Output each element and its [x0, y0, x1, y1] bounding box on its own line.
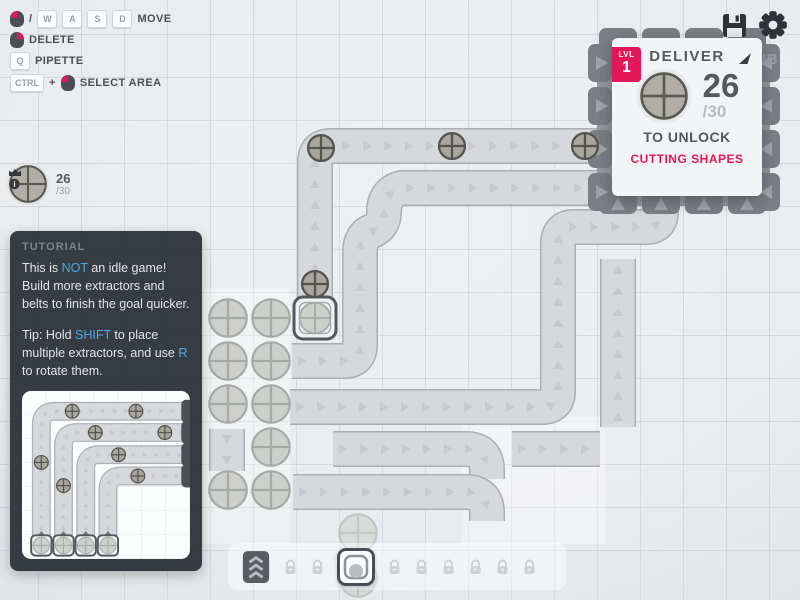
- tutorial-panel: TUTORIAL This is NOT an idle game! Build…: [10, 231, 202, 571]
- plus-sign: +: [49, 77, 56, 89]
- key-s: S: [87, 10, 107, 28]
- pin-goal-button[interactable]: [739, 52, 752, 65]
- toolbar-slot-locked[interactable]: [414, 558, 429, 575]
- deliver-goal-panel: LVL 1 DELIVER 26 /30 TO UNLOCK CUTTING S…: [612, 38, 762, 196]
- toolbar-slot-locked[interactable]: [495, 558, 510, 575]
- hint-pipette-label: PIPETTE: [35, 55, 84, 67]
- pinned-shape-counter[interactable]: i 26 /30: [6, 162, 70, 206]
- pinned-total: /30: [56, 186, 70, 197]
- hint-select-area-label: SELECT AREA: [80, 77, 162, 89]
- top-right-buttons: [721, 10, 788, 40]
- unlock-text: TO UNLOCK: [612, 129, 762, 145]
- level-number: 1: [612, 60, 641, 76]
- toolbar-slot-locked[interactable]: [283, 558, 298, 575]
- goal-marker-icon: i: [8, 166, 22, 194]
- game-screen: / W A S D MOVE DELETE Q PIPETTE CTRL + S…: [0, 0, 800, 600]
- key-d: D: [112, 10, 132, 28]
- lock-icon: [441, 558, 456, 575]
- level-label: LVL: [612, 51, 641, 59]
- lock-icon: [468, 558, 483, 575]
- left-mouse-icon: [61, 75, 75, 91]
- toolbar-slot-locked[interactable]: [468, 558, 483, 575]
- toolbar-slot-extractor-selected[interactable]: [337, 548, 375, 586]
- key-ctrl: CTRL: [10, 74, 44, 92]
- hint-pipette: Q PIPETTE: [10, 52, 171, 70]
- tutorial-paragraph-2: Tip: Hold SHIFT to place multiple extrac…: [22, 327, 190, 380]
- svg-text:i: i: [13, 180, 15, 189]
- lock-icon: [310, 558, 325, 575]
- toolbar-slot-locked[interactable]: [387, 558, 402, 575]
- level-badge: LVL 1: [612, 47, 641, 82]
- belt-icon: [241, 550, 271, 584]
- right-mouse-icon: [10, 32, 24, 48]
- hint-delete-label: DELETE: [29, 34, 75, 46]
- settings-gear-icon[interactable]: [758, 10, 788, 40]
- hint-delete: DELETE: [10, 32, 171, 48]
- toolbar-slot-locked[interactable]: [441, 558, 456, 575]
- lock-icon: [414, 558, 429, 575]
- hint-select-area: CTRL + SELECT AREA: [10, 74, 171, 92]
- separator: /: [29, 13, 32, 25]
- save-icon[interactable]: [721, 12, 748, 39]
- lock-icon: [495, 558, 510, 575]
- keybinding-hints: / W A S D MOVE DELETE Q PIPETTE CTRL + S…: [10, 10, 171, 96]
- lock-icon: [283, 558, 298, 575]
- tutorial-illustration: [22, 391, 190, 559]
- toolbar-slot-locked[interactable]: [522, 558, 537, 575]
- reward-text: CUTTING SHAPES: [612, 152, 762, 166]
- delivered-amount: 26: [703, 70, 740, 101]
- tutorial-title: TUTORIAL: [22, 241, 190, 253]
- hint-move: / W A S D MOVE: [10, 10, 171, 28]
- lock-icon: [387, 558, 402, 575]
- hint-move-label: MOVE: [137, 13, 171, 25]
- tutorial-extractors: [31, 531, 118, 556]
- pinned-amount: 26: [56, 171, 70, 186]
- goal-shape-icon: [635, 67, 693, 125]
- toolbar-slot-belt[interactable]: [241, 550, 271, 584]
- goal-total: /30: [703, 102, 740, 122]
- toolbar-slot-locked[interactable]: [310, 558, 325, 575]
- lock-icon: [522, 558, 537, 575]
- key-q: Q: [10, 52, 30, 70]
- key-a: A: [62, 10, 82, 28]
- tutorial-hub-caps: [181, 399, 190, 487]
- extractor-icon: [343, 554, 369, 580]
- left-mouse-icon: [10, 11, 24, 27]
- tutorial-paragraph-1: This is NOT an idle game! Build more ext…: [22, 260, 190, 313]
- building-toolbar: [228, 543, 566, 590]
- key-w: W: [37, 10, 57, 28]
